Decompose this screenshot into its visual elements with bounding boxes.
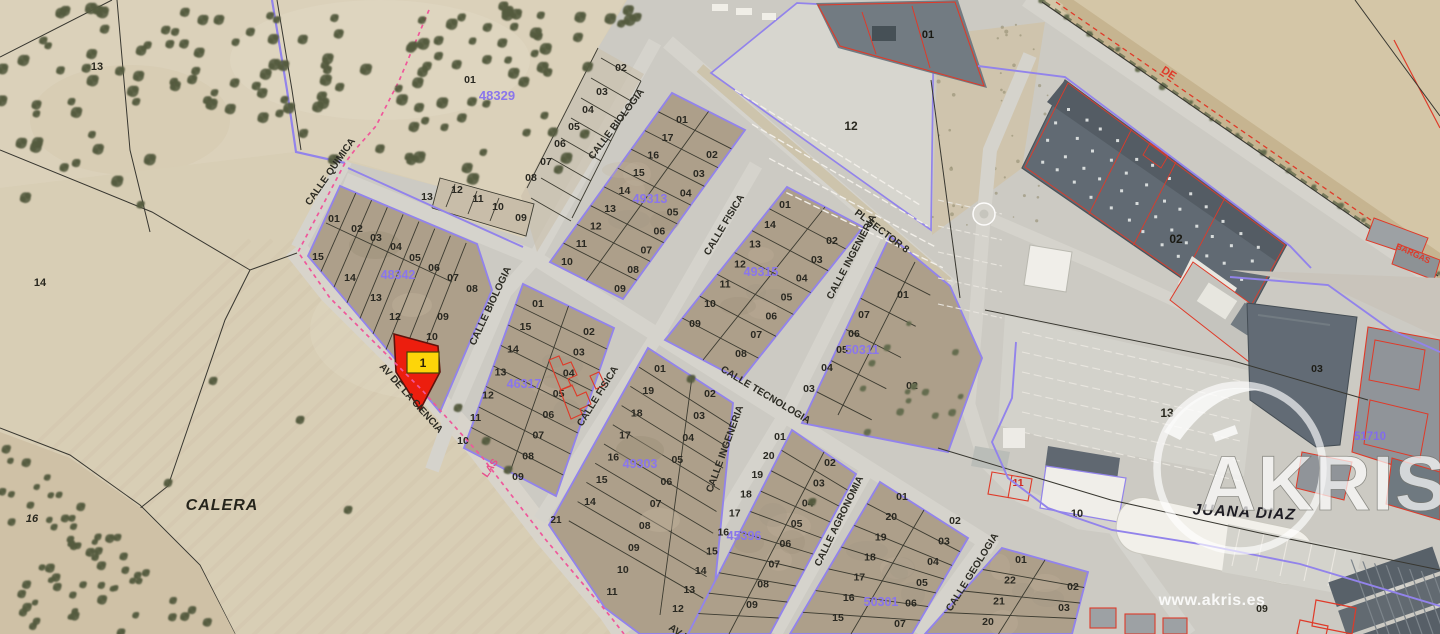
svg-text:AKRIS: AKRIS — [1200, 439, 1440, 527]
svg-text:www.akris.es: www.akris.es — [1158, 592, 1266, 609]
